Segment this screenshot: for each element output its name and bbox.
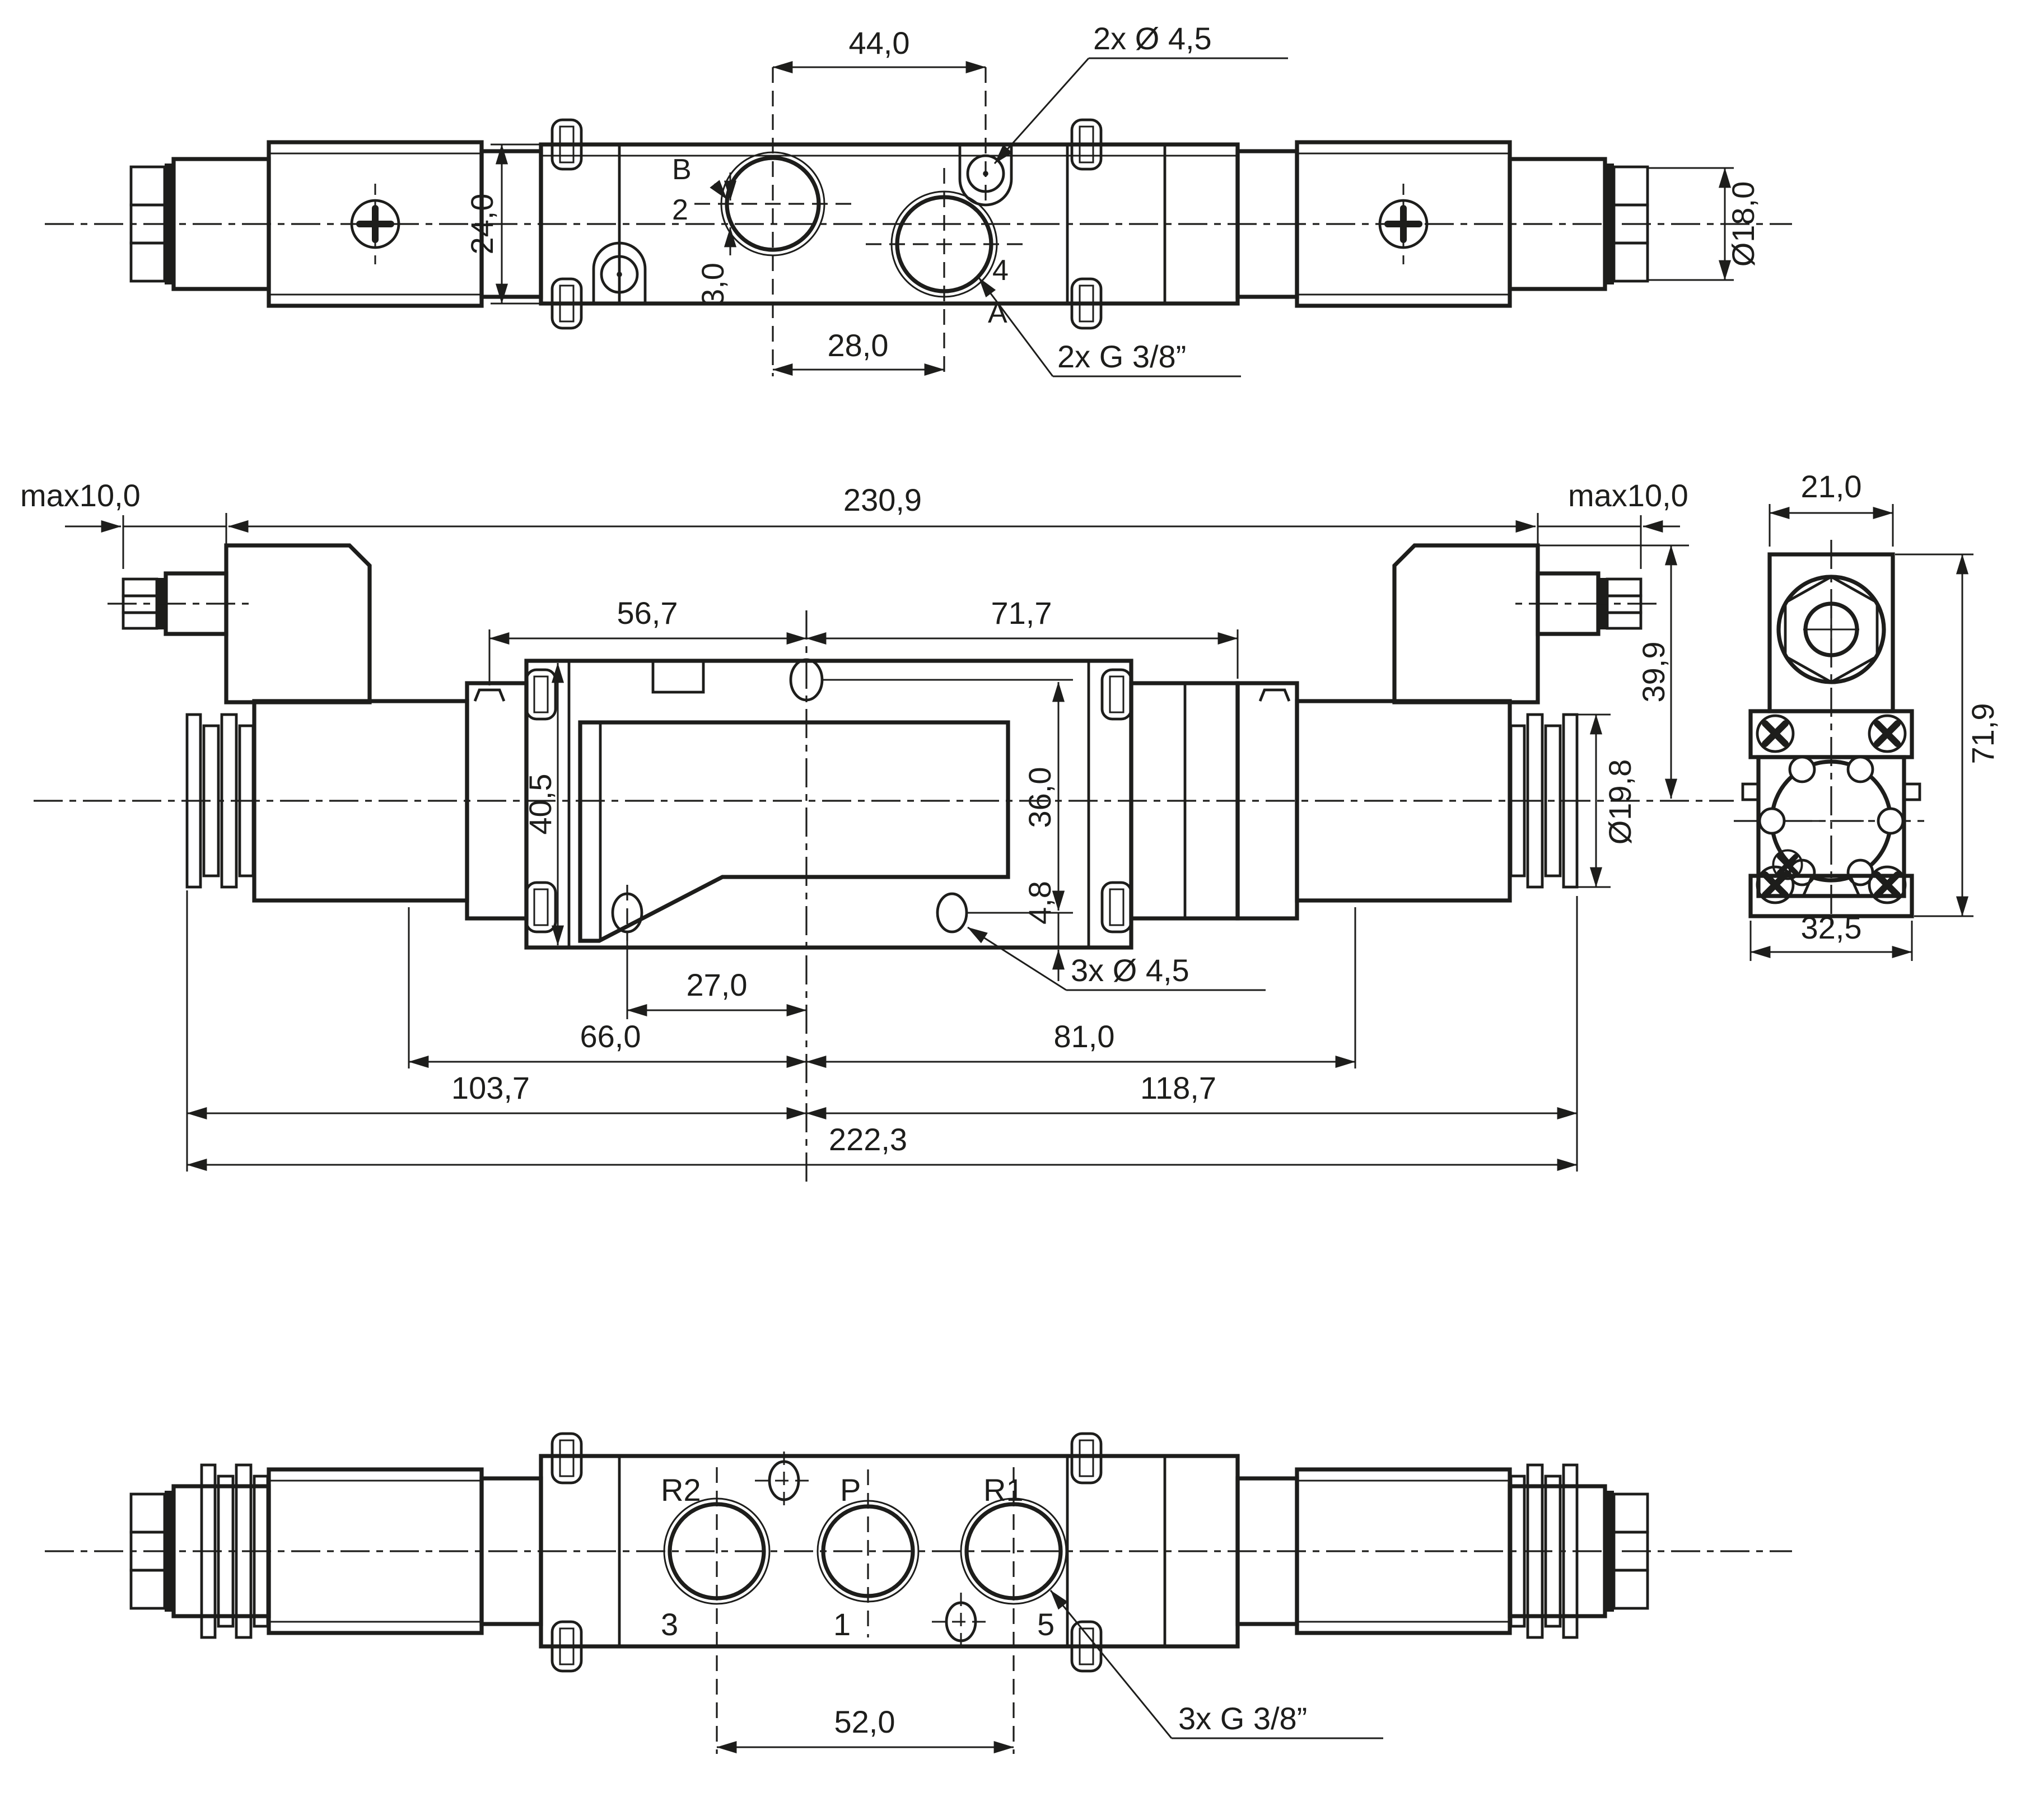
label-port-3: 3 xyxy=(661,1607,678,1642)
dim-d198-label: Ø19,8 xyxy=(1602,759,1637,845)
dim-71-label: 71,7 xyxy=(991,595,1052,631)
dim-max10-left-label: max10,0 xyxy=(20,478,141,513)
mounting-tab xyxy=(1102,883,1131,932)
dim-36-label: 36,0 xyxy=(1022,767,1057,828)
dim-719-label: 71,9 xyxy=(1965,703,2000,764)
pilot-hole xyxy=(932,1593,990,1651)
dim-103-label: 103,7 xyxy=(451,1070,530,1105)
nameplate xyxy=(580,722,1008,941)
front-view-dimensions: max10,0 230,9 max10,0 56,7 71,7 40,5 36,… xyxy=(20,478,1689,1172)
label-port-1: 1 xyxy=(833,1607,851,1642)
mounting-tab xyxy=(1072,1434,1101,1483)
dim-222-label: 222,3 xyxy=(829,1122,907,1157)
phillips-screw-icon xyxy=(1869,716,1905,752)
dim-40-label: 40,5 xyxy=(522,774,558,835)
label-port-4: 4 xyxy=(992,254,1009,287)
label-port-5: 5 xyxy=(1037,1607,1055,1642)
mounting-hole xyxy=(937,894,967,932)
mounting-tab xyxy=(526,883,556,932)
dim-39-label: 39,9 xyxy=(1636,642,1671,703)
dim-118-label: 118,7 xyxy=(1140,1070,1216,1105)
dim-66-label: 66,0 xyxy=(580,1019,641,1054)
dim-2x-d45-label: 2x Ø 4,5 xyxy=(1093,21,1212,56)
dim-24-label: 24,0 xyxy=(464,194,500,255)
left-solenoid-front xyxy=(108,545,526,918)
dim-27-label: 27,0 xyxy=(687,967,748,1002)
dim-56-label: 56,7 xyxy=(617,595,678,631)
pilot-hole xyxy=(755,1452,813,1510)
dim-3-label: 3,0 xyxy=(695,263,730,306)
label-port-r2: R2 xyxy=(661,1472,701,1508)
phillips-screw-icon xyxy=(1757,716,1793,752)
valve-technical-drawing: 44,0 2x Ø 4,5 24,0 B 2 3,0 28,0 4 A 2x G… xyxy=(0,0,2025,1820)
dim-21-label: 21,0 xyxy=(1801,469,1862,504)
label-port-r1: R1 xyxy=(983,1472,1024,1508)
dim-3x-d45-label: 3x Ø 4,5 xyxy=(1071,953,1189,988)
dim-48-label: 4,8 xyxy=(1022,881,1057,925)
front-view: max10,0 230,9 max10,0 56,7 71,7 40,5 36,… xyxy=(20,478,1734,1185)
dim-81-label: 81,0 xyxy=(1054,1019,1115,1054)
dim-3x-g38-label: 3x G 3/8” xyxy=(1178,1701,1307,1736)
dim-52-label: 52,0 xyxy=(834,1704,895,1739)
dim-2x-g38-label: 2x G 3/8” xyxy=(1057,339,1186,374)
side-view: 21,0 71,9 32,5 xyxy=(1734,469,2000,961)
dim-max10-right-label: max10,0 xyxy=(1568,478,1688,513)
top-view: 44,0 2x Ø 4,5 24,0 B 2 3,0 28,0 4 A 2x G… xyxy=(45,21,1792,376)
dim-d18-label: Ø18,0 xyxy=(1725,181,1761,267)
port-b2 xyxy=(694,152,853,255)
drawing-page: 44,0 2x Ø 4,5 24,0 B 2 3,0 28,0 4 A 2x G… xyxy=(0,0,2025,1820)
dim-325-label: 32,5 xyxy=(1801,910,1862,945)
dim-44-label: 44,0 xyxy=(849,25,910,60)
right-solenoid-front xyxy=(1238,545,1657,918)
bottom-view: R2 P R1 3 1 5 52,0 3x G 3/8” xyxy=(45,1434,1792,1754)
label-port-b: B xyxy=(672,153,692,186)
mounting-tab xyxy=(526,670,556,719)
label-port-2: 2 xyxy=(672,194,688,226)
label-port-p: P xyxy=(840,1472,861,1508)
mounting-tab xyxy=(552,1434,581,1483)
side-view-dimensions: 21,0 71,9 32,5 xyxy=(1751,469,2000,961)
dim-28-label: 28,0 xyxy=(828,328,889,363)
top-view-dimensions: 44,0 2x Ø 4,5 24,0 B 2 3,0 28,0 4 A 2x G… xyxy=(464,21,1761,376)
dim-230-label: 230,9 xyxy=(843,482,922,517)
mounting-tab xyxy=(1102,670,1131,719)
body-notch xyxy=(653,661,703,692)
